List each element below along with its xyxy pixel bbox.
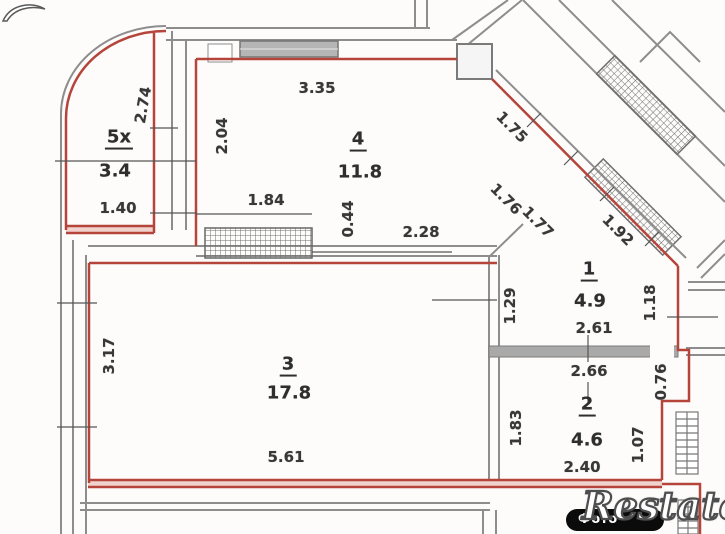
dimension-label: 1.29 [501,287,519,324]
room-5x-number: 5х [105,129,133,150]
room-3-area: 17.8 [267,383,311,404]
dimension-label: 1.83 [507,409,525,446]
room-1-number: 1 [581,261,598,282]
room-2-number: 2 [579,396,596,417]
dimension-label: 5.61 [267,448,304,466]
room-3-number: 3 [280,356,297,377]
dimension-label: 1.18 [641,284,659,321]
dimension-label: 0.76 [652,363,670,400]
room-1-area: 4.9 [574,291,606,312]
dimension-label: 0.44 [339,200,357,237]
column [457,44,492,79]
dimension-label: 1.07 [629,426,647,463]
dimension-label: 1.84 [247,191,284,209]
room-4-number: 4 [350,131,367,152]
room-2-area: 4.6 [571,430,603,451]
dimension-label: 3.35 [298,79,335,97]
dimension-label: 2.40 [563,458,600,476]
dimension-label: 1.40 [99,199,136,217]
floor-plan-drawing [0,0,725,534]
bath-door-gap [650,345,674,358]
dimension-label: 2.28 [402,223,439,241]
vent-shaft [205,228,312,258]
room-5x-area: 3.4 [99,161,131,182]
dimension-label: 3.17 [100,337,118,374]
floor-plan: 5х 3.4 4 11.8 1 4.9 2 4.6 3 17.8 3.35 1.… [0,0,725,534]
watermark-logo: Restate [582,487,725,525]
dimension-label: 2.66 [570,362,607,380]
dimension-label: 2.04 [213,117,231,154]
window-top [240,41,338,57]
room-4-area: 11.8 [338,162,382,183]
dimension-label: 2.61 [575,319,612,337]
bath-wall-band [489,346,678,357]
apartment-outline [66,31,700,534]
watermark-swoosh-icon [0,0,48,24]
